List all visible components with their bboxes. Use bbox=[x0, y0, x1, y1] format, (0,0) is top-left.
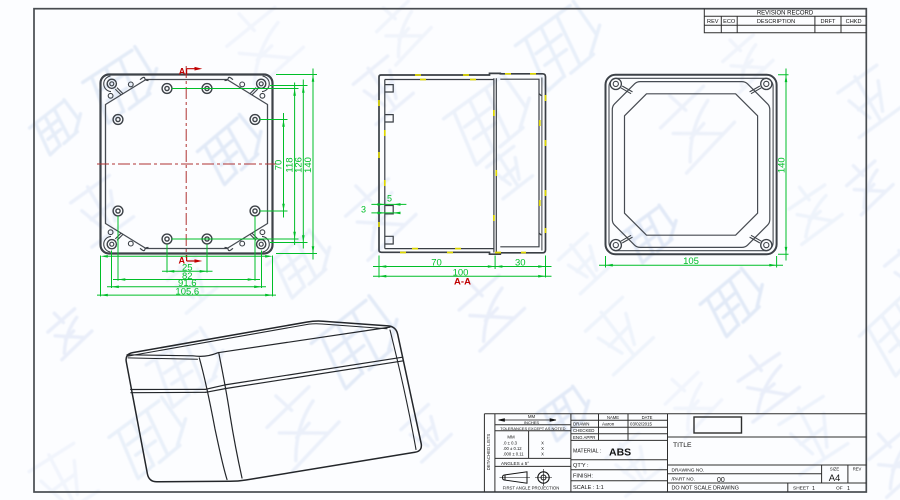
svg-text:30: 30 bbox=[515, 258, 526, 269]
svg-text:CHKD: CHKD bbox=[846, 19, 862, 25]
svg-text:1: 1 bbox=[847, 486, 850, 492]
svg-text:INCHES: INCHES bbox=[524, 420, 539, 425]
svg-text:A: A bbox=[179, 67, 186, 77]
svg-text:DETACHED LISTS: DETACHED LISTS bbox=[486, 434, 491, 471]
svg-text:.000 ± 0.11: .000 ± 0.11 bbox=[503, 451, 524, 456]
svg-text:REV: REV bbox=[707, 19, 719, 25]
svg-text:70: 70 bbox=[274, 160, 285, 171]
svg-text:DRAWING NO.: DRAWING NO. bbox=[672, 467, 705, 473]
svg-text:ECO: ECO bbox=[723, 19, 736, 25]
svg-text:DATE: DATE bbox=[642, 415, 653, 420]
svg-text:SHEET: SHEET bbox=[793, 486, 809, 492]
svg-text:X: X bbox=[541, 451, 544, 456]
svg-text:MM: MM bbox=[528, 414, 536, 419]
svg-text:DESCRIPTION: DESCRIPTION bbox=[757, 19, 795, 25]
svg-text:03/02/2015: 03/02/2015 bbox=[630, 422, 653, 427]
svg-text:A4: A4 bbox=[829, 473, 841, 484]
svg-text:REVISION RECORD: REVISION RECORD bbox=[757, 11, 814, 17]
svg-text:TOLERANCES EXCEPT AS NOTED: TOLERANCES EXCEPT AS NOTED bbox=[500, 426, 566, 431]
svg-text:SCALE : 1:1: SCALE : 1:1 bbox=[573, 485, 604, 491]
svg-text:DO NOT SCALE DRAWING: DO NOT SCALE DRAWING bbox=[672, 486, 739, 492]
svg-text:70: 70 bbox=[431, 258, 442, 269]
svg-text:QT'Y :: QT'Y : bbox=[573, 463, 589, 469]
svg-text:/PART NO.: /PART NO. bbox=[672, 477, 695, 483]
svg-text:X: X bbox=[541, 446, 544, 451]
svg-text:105.6: 105.6 bbox=[175, 286, 199, 297]
svg-text:DRAWN: DRAWN bbox=[573, 422, 589, 427]
svg-text:1: 1 bbox=[812, 486, 815, 492]
svg-text:REV: REV bbox=[853, 466, 862, 471]
svg-text:CHECKED: CHECKED bbox=[573, 428, 594, 433]
svg-text:NAME: NAME bbox=[607, 415, 619, 420]
svg-text:.0 ± 0.3: .0 ± 0.3 bbox=[503, 440, 518, 445]
svg-text:MATERIAL :: MATERIAL : bbox=[573, 449, 601, 455]
svg-text:OF: OF bbox=[836, 486, 843, 492]
svg-text:140: 140 bbox=[776, 157, 787, 173]
svg-text:X: X bbox=[541, 440, 544, 445]
svg-text:DRFT: DRFT bbox=[821, 19, 836, 25]
svg-text:SIZE: SIZE bbox=[830, 466, 840, 471]
svg-text:3: 3 bbox=[361, 205, 366, 215]
svg-text:A-A: A-A bbox=[454, 277, 471, 288]
svg-text:Aaron: Aaron bbox=[602, 422, 615, 427]
svg-text:ENG APPR: ENG APPR bbox=[573, 435, 595, 440]
svg-text:105: 105 bbox=[683, 256, 699, 267]
svg-text:00: 00 bbox=[717, 477, 725, 484]
svg-text:.00 ± 0.12: .00 ± 0.12 bbox=[503, 446, 522, 451]
svg-text:FIRST ANGLE PROJECTION: FIRST ANGLE PROJECTION bbox=[503, 486, 560, 491]
svg-text:ANGLES ± 5°: ANGLES ± 5° bbox=[501, 461, 529, 466]
svg-text:5: 5 bbox=[387, 194, 392, 204]
svg-text:MM: MM bbox=[507, 434, 515, 439]
svg-text:ABS: ABS bbox=[609, 447, 631, 459]
svg-text:140: 140 bbox=[303, 157, 314, 173]
svg-text:FINISH:: FINISH: bbox=[573, 474, 593, 480]
svg-text:TITLE: TITLE bbox=[673, 442, 692, 449]
